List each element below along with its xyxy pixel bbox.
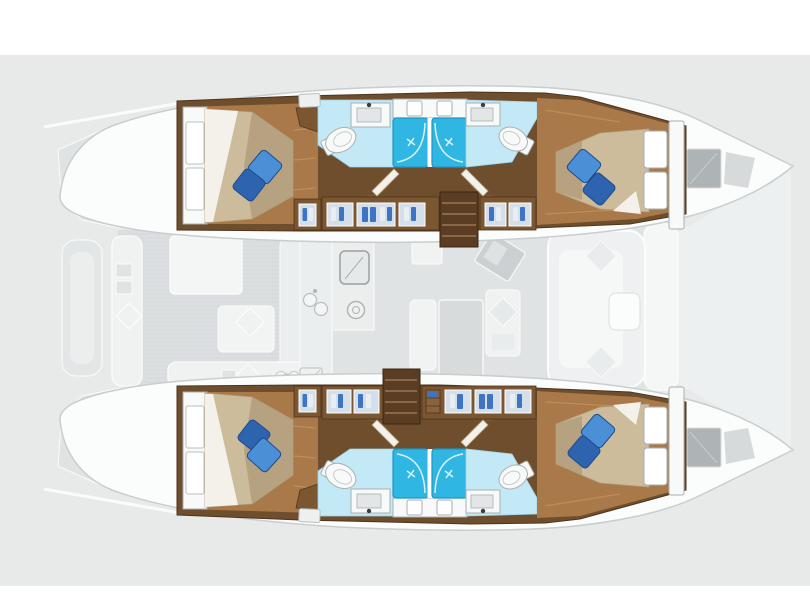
bow-bulkhead (669, 121, 684, 229)
locker-window (299, 204, 316, 226)
hanging-clothes (380, 207, 385, 221)
headboard-panel (186, 406, 204, 448)
hanging-clothes (513, 207, 518, 221)
hanging-clothes (331, 207, 336, 221)
shower-sill (393, 498, 467, 517)
headboard-panel (186, 122, 204, 164)
hanging-clothes (457, 394, 463, 409)
nav-footrest (492, 334, 514, 350)
hanging-clothes (309, 394, 314, 407)
hanging-clothes (309, 208, 314, 221)
sink-basin (357, 108, 381, 122)
catamaran-floor-plan (0, 0, 810, 608)
locker-window (299, 390, 316, 412)
hanging-clothes (387, 207, 392, 221)
hanging-clothes (303, 394, 308, 407)
hanging-clothes (331, 394, 336, 408)
headboard-panel (186, 452, 204, 494)
hanging-clothes (370, 207, 376, 222)
hanging-clothes (496, 207, 501, 221)
headboard-panel (644, 448, 667, 485)
shower-shelf (407, 101, 422, 116)
deck-hatch-small (299, 93, 321, 107)
dining-bench (410, 300, 436, 370)
locker-window (485, 203, 506, 226)
faucet (367, 509, 371, 513)
hanging-clothes (510, 394, 515, 408)
cockpit-table (170, 236, 242, 294)
faucet (481, 103, 485, 107)
sink-basin (357, 494, 381, 508)
hanging-clothes (303, 208, 308, 221)
headboard-panel (186, 168, 204, 210)
shower-shelf (437, 500, 452, 515)
faucet (481, 509, 485, 513)
hanging-clothes (517, 394, 522, 408)
hanging-clothes (404, 207, 409, 221)
galley-sink-basin (315, 303, 328, 316)
hanging-clothes (339, 207, 344, 221)
hanging-clothes (366, 394, 371, 408)
shower-sill (393, 99, 467, 118)
companionway-steps (440, 192, 478, 247)
headboard-panel (644, 407, 667, 444)
forward-table (609, 293, 640, 330)
bench-locker (116, 281, 132, 294)
shower-shelf (407, 500, 422, 515)
hanging-clothes (358, 394, 363, 408)
bow-bulkhead (669, 387, 684, 495)
headboard-panel (644, 131, 667, 168)
faucet (367, 103, 371, 107)
sink-basin (471, 108, 493, 121)
dining-table (439, 300, 483, 382)
sink-basin (471, 495, 493, 508)
deck-hatch-small (299, 508, 321, 522)
folded-clothes (428, 392, 437, 397)
bench-locker (116, 264, 132, 277)
hanging-clothes (450, 394, 455, 408)
galley-sink-basin (304, 294, 317, 307)
burner-dial (348, 302, 365, 319)
hanging-clothes (411, 207, 416, 221)
companionway-steps (383, 369, 420, 424)
hanging-clothes (479, 394, 485, 409)
hanging-clothes (362, 207, 368, 222)
hanging-clothes (489, 207, 494, 221)
forward-crossbeam (644, 224, 678, 390)
hanging-clothes (338, 394, 343, 408)
hanging-clothes (520, 207, 525, 221)
galley-faucet (313, 289, 317, 293)
shower-shelf (437, 101, 452, 116)
headboard-panel (644, 172, 667, 209)
dinghy (70, 252, 94, 364)
floor-plan-image (0, 0, 810, 608)
hanging-clothes (487, 394, 493, 409)
